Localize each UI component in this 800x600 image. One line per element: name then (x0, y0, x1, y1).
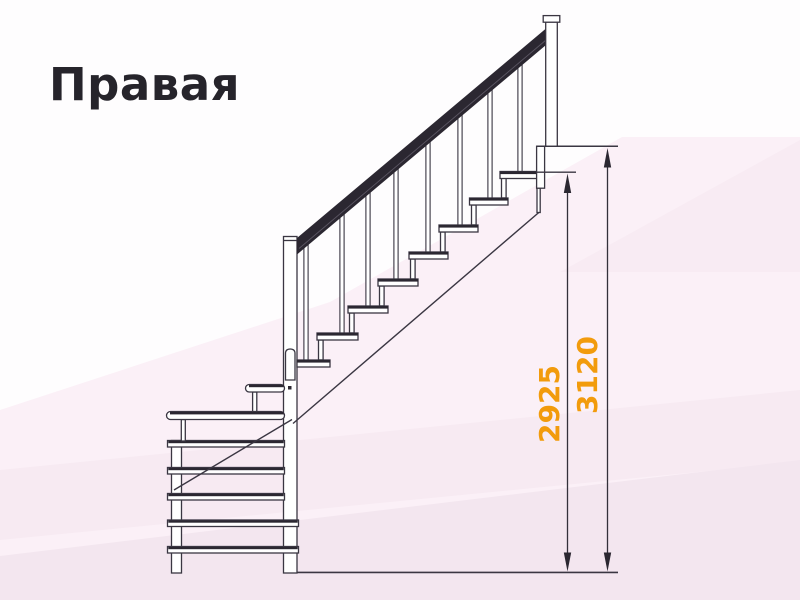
staircase-diagram: 2925 3120 Правая (0, 0, 800, 600)
dimension-3120-label: 3120 (571, 336, 604, 414)
dimension-2925-label: 2925 (533, 365, 566, 443)
top-newel-post (543, 16, 560, 147)
page-title: Правая (49, 60, 240, 110)
newel-spindle (286, 349, 296, 380)
fixing-dot (288, 386, 292, 390)
